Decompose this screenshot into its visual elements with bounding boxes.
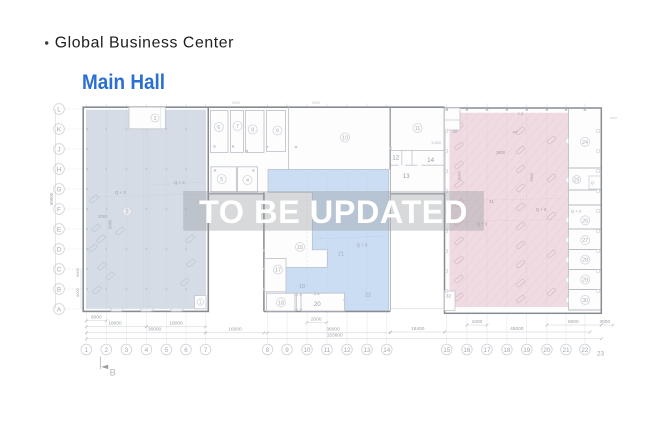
svg-text:28: 28: [582, 258, 588, 264]
svg-text:13: 13: [403, 173, 411, 180]
svg-text:18: 18: [503, 347, 511, 354]
svg-text:9: 9: [285, 347, 289, 354]
svg-text:14: 14: [383, 347, 391, 354]
svg-text:5: 5: [220, 177, 223, 183]
svg-text:F: F: [57, 206, 61, 213]
svg-text:25: 25: [574, 177, 580, 183]
svg-text:6000: 6000: [568, 319, 579, 325]
svg-text:31: 31: [489, 199, 494, 204]
svg-text:45': 45': [453, 130, 458, 134]
svg-text:9000: 9000: [312, 101, 320, 105]
svg-text:3: 3: [125, 347, 129, 354]
svg-text:3000: 3000: [599, 319, 610, 325]
svg-text:6000: 6000: [76, 288, 80, 296]
svg-text:36000: 36000: [148, 327, 162, 333]
svg-text:10: 10: [303, 347, 311, 354]
svg-text:20: 20: [314, 301, 321, 308]
svg-text:Q + 3: Q + 3: [115, 190, 126, 195]
svg-text:2: 2: [125, 209, 128, 215]
svg-text:19: 19: [523, 347, 531, 354]
svg-text:17: 17: [275, 267, 281, 273]
svg-text:1900: 1900: [496, 150, 506, 155]
svg-text:15: 15: [297, 245, 303, 251]
svg-text:36000: 36000: [326, 327, 340, 333]
svg-text:K: K: [57, 126, 62, 133]
svg-text:J: J: [57, 146, 60, 153]
svg-text:A: A: [57, 306, 62, 313]
svg-text:45': 45': [513, 131, 518, 135]
svg-text:8: 8: [251, 127, 254, 133]
svg-text:D: D: [57, 246, 62, 253]
svg-text:60000: 60000: [49, 192, 54, 205]
svg-text:Main Hall: Main Hall: [82, 70, 165, 94]
svg-text:G: G: [57, 186, 62, 193]
svg-text:16000: 16000: [228, 327, 242, 333]
svg-text:Q + 3: Q + 3: [357, 243, 368, 248]
svg-text:2093: 2093: [98, 214, 108, 219]
svg-text:18400: 18400: [411, 326, 425, 332]
svg-text:1.000: 1.000: [431, 140, 442, 145]
svg-text:12: 12: [343, 347, 351, 354]
svg-text:B: B: [57, 286, 61, 293]
svg-text:23: 23: [597, 350, 605, 357]
svg-text:8: 8: [266, 347, 270, 354]
svg-text:B: B: [110, 368, 116, 378]
svg-text:Q + 3: Q + 3: [536, 207, 547, 212]
svg-text:18000: 18000: [169, 321, 183, 327]
svg-text:45000: 45000: [510, 326, 524, 332]
svg-text:19: 19: [299, 284, 305, 290]
svg-text:13: 13: [363, 347, 371, 354]
svg-text:7: 7: [236, 124, 239, 130]
svg-text:C: C: [57, 266, 62, 273]
svg-text:30: 30: [582, 298, 588, 304]
svg-text:6000: 6000: [529, 172, 534, 182]
svg-text:10: 10: [342, 135, 348, 141]
svg-text:Q + 3: Q + 3: [174, 180, 185, 185]
svg-text:21: 21: [562, 347, 570, 354]
svg-text:24: 24: [582, 140, 588, 146]
svg-text:21: 21: [338, 252, 344, 258]
svg-text:E: E: [57, 226, 61, 233]
svg-text:29: 29: [582, 277, 588, 283]
svg-text:14: 14: [427, 157, 435, 164]
svg-text:32: 32: [446, 294, 451, 299]
svg-text:27: 27: [582, 238, 588, 244]
svg-text:9: 9: [276, 128, 279, 134]
svg-text:2.3: 2.3: [518, 112, 523, 116]
svg-text:22: 22: [581, 347, 589, 354]
svg-text:12: 12: [392, 155, 400, 162]
svg-text:9000: 9000: [232, 101, 240, 105]
svg-text:2000: 2000: [311, 316, 322, 322]
svg-text:4: 4: [145, 347, 149, 354]
svg-text:6000: 6000: [76, 268, 80, 276]
svg-text:15: 15: [443, 347, 451, 354]
svg-text:Q + 3: Q + 3: [571, 209, 582, 214]
svg-text:TO BE UPDATED: TO BE UPDATED: [199, 194, 468, 230]
svg-text:4: 4: [246, 178, 249, 184]
svg-text:6000: 6000: [457, 170, 462, 180]
svg-text:16: 16: [463, 347, 471, 354]
svg-text:22: 22: [365, 293, 371, 299]
svg-text:2: 2: [105, 347, 109, 354]
svg-text:9000: 9000: [108, 219, 113, 229]
svg-text:3: 3: [154, 116, 157, 122]
svg-text:7: 7: [204, 347, 208, 354]
svg-text:26: 26: [582, 218, 588, 224]
svg-text:H: H: [57, 166, 62, 173]
svg-text:L: L: [57, 106, 61, 113]
svg-text:6000: 6000: [91, 315, 102, 321]
svg-text:18000: 18000: [108, 321, 122, 327]
svg-text:6: 6: [184, 347, 188, 354]
svg-text:11: 11: [324, 347, 331, 354]
svg-text:11: 11: [415, 126, 421, 132]
svg-text:153600: 153600: [327, 333, 343, 339]
svg-text:1: 1: [85, 347, 89, 354]
svg-text:1000: 1000: [472, 319, 483, 325]
svg-text:20: 20: [543, 347, 551, 354]
svg-text:18: 18: [278, 300, 284, 306]
svg-text:6: 6: [217, 125, 220, 131]
svg-text:5: 5: [165, 347, 169, 354]
svg-text:Global Business Center: Global Business Center: [55, 34, 234, 51]
svg-text:17: 17: [483, 347, 491, 354]
